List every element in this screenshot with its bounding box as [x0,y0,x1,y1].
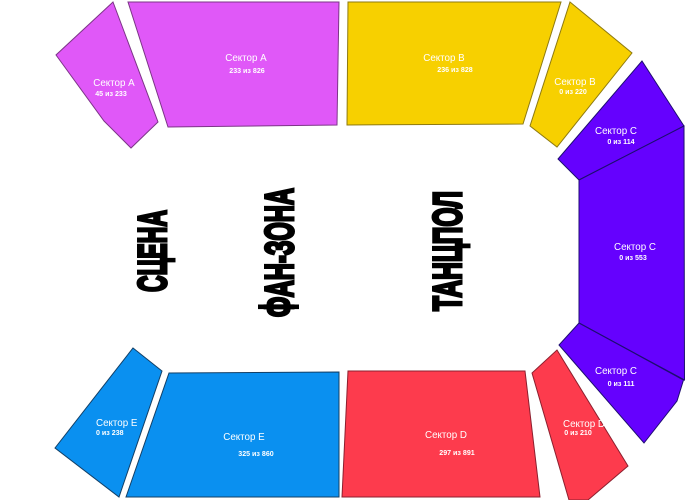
svg-text:ТАНЦПОЛ: ТАНЦПОЛ [426,191,470,311]
svg-text:Сектор С: Сектор С [614,242,656,253]
svg-text:Сектор В: Сектор В [554,77,596,88]
svg-text:0 из 210: 0 из 210 [564,429,592,437]
svg-text:0 из 220: 0 из 220 [559,88,587,96]
svg-text:0 из 114: 0 из 114 [607,138,634,146]
svg-text:Сектор D: Сектор D [425,430,467,441]
svg-text:Сектор Е: Сектор Е [223,432,265,443]
svg-text:297 из 891: 297 из 891 [439,449,475,457]
svg-text:Сектор В: Сектор В [423,53,465,64]
svg-text:325 из 860: 325 из 860 [238,450,274,458]
svg-text:Сектор А: Сектор А [93,78,135,89]
svg-text:0 из 111: 0 из 111 [608,380,635,388]
svg-text:Сектор А: Сектор А [225,53,267,64]
svg-text:45 из 233: 45 из 233 [95,90,127,98]
svg-text:0 из 238: 0 из 238 [96,429,124,437]
svg-text:233 из 826: 233 из 826 [229,67,265,75]
svg-text:Сектор Е: Сектор Е [96,418,138,429]
svg-text:236 из 828: 236 из 828 [437,66,473,74]
svg-text:Сектор С: Сектор С [595,126,637,137]
svg-text:0 из 553: 0 из 553 [619,254,647,262]
svg-text:Сектор С: Сектор С [595,366,637,377]
svg-text:ФАН-ЗОНА: ФАН-ЗОНА [258,188,302,317]
svg-text:СЦЕНА: СЦЕНА [131,210,175,292]
